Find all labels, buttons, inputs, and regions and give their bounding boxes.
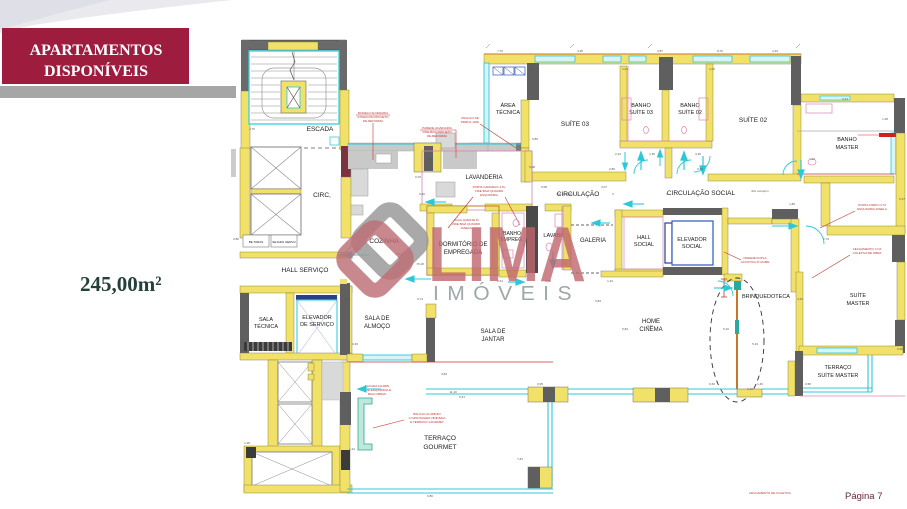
svg-text:GOURMET: GOURMET bbox=[423, 444, 456, 451]
svg-text:11,10: 11,10 bbox=[449, 390, 457, 394]
svg-text:ESQUADRIA JANELA: ESQUADRIA JANELA bbox=[857, 207, 887, 211]
svg-text:0,74: 0,74 bbox=[417, 297, 423, 301]
svg-text:TÉCNICA: TÉCNICA bbox=[496, 109, 520, 116]
svg-text:0,80: 0,80 bbox=[233, 237, 239, 241]
svg-text:TÉCNICA: TÉCNICA bbox=[254, 323, 278, 330]
svg-text:SALA DE: SALA DE bbox=[480, 329, 505, 335]
svg-text:dim comprim: dim comprim bbox=[751, 189, 769, 193]
svg-text:4,35: 4,35 bbox=[577, 49, 583, 53]
svg-text:CIRCULAÇÃO SOCIAL: CIRCULAÇÃO SOCIAL bbox=[667, 188, 736, 197]
svg-text:DE SERVIÇO: DE SERVIÇO bbox=[300, 322, 335, 328]
svg-text:0,80: 0,80 bbox=[609, 167, 615, 171]
svg-text:ELEVADOR: ELEVADOR bbox=[677, 237, 707, 243]
svg-text:0,46: 0,46 bbox=[352, 342, 358, 346]
svg-text:8,70: 8,70 bbox=[717, 49, 723, 53]
svg-text:3,43: 3,43 bbox=[647, 324, 653, 328]
svg-text:SALA DE: SALA DE bbox=[364, 316, 389, 322]
svg-text:FECHAMENTO DE COLETIVA: FECHAMENTO DE COLETIVA bbox=[749, 491, 790, 495]
svg-text:PERFIL 1200: PERFIL 1200 bbox=[461, 120, 479, 124]
svg-text:BANHO: BANHO bbox=[631, 103, 651, 109]
svg-text:ESCADA: ESCADA bbox=[307, 126, 334, 133]
svg-text:0,15: 0,15 bbox=[415, 175, 421, 179]
svg-text:BRINQUEDOTECA: BRINQUEDOTECA bbox=[742, 294, 790, 300]
svg-text:TERRAÇO: TERRAÇO bbox=[424, 435, 456, 442]
svg-text:5,08: 5,08 bbox=[541, 185, 547, 189]
svg-text:2,24: 2,24 bbox=[615, 152, 621, 156]
svg-text:ESQUADRIA: ESQUADRIA bbox=[480, 193, 498, 197]
svg-text:CIRC,: CIRC, bbox=[313, 192, 331, 199]
svg-text:5,10: 5,10 bbox=[723, 327, 729, 331]
svg-text:1,80: 1,80 bbox=[789, 202, 795, 206]
svg-text:ÁREA: ÁREA bbox=[501, 102, 516, 109]
svg-text:1,48: 1,48 bbox=[882, 117, 888, 121]
svg-text:JANTAR: JANTAR bbox=[482, 337, 506, 343]
svg-text:0,87: 0,87 bbox=[657, 49, 663, 53]
svg-text:5,84: 5,84 bbox=[595, 299, 601, 303]
svg-text:BE TARAS: BE TARAS bbox=[249, 240, 264, 244]
svg-text:SUÍTE 02: SUÍTE 02 bbox=[678, 109, 702, 116]
svg-text:SEJADO HERVO: SEJADO HERVO bbox=[272, 240, 296, 244]
svg-text:0,58: 0,58 bbox=[805, 382, 811, 386]
svg-text:LAVANDERIA: LAVANDERIA bbox=[465, 175, 502, 181]
svg-text:1,46: 1,46 bbox=[747, 387, 753, 391]
svg-text:1,46: 1,46 bbox=[757, 382, 763, 386]
svg-text:TERRAÇO: TERRAÇO bbox=[825, 365, 853, 371]
svg-text:7,70: 7,70 bbox=[497, 49, 503, 53]
svg-text:5,10: 5,10 bbox=[752, 342, 758, 346]
svg-text:0,23: 0,23 bbox=[842, 97, 848, 101]
svg-text:1,73: 1,73 bbox=[823, 237, 829, 241]
svg-text:MASTER: MASTER bbox=[847, 301, 870, 307]
svg-text:0,60: 0,60 bbox=[709, 382, 715, 386]
svg-text:1,28: 1,28 bbox=[244, 441, 250, 445]
svg-text:5,61: 5,61 bbox=[459, 395, 465, 399]
svg-text:DE REFORMA: DE REFORMA bbox=[363, 119, 383, 123]
svg-text:HALL: HALL bbox=[637, 235, 651, 241]
svg-text:HALL SERVIÇO: HALL SERVIÇO bbox=[282, 267, 329, 274]
svg-text:MASTER: MASTER bbox=[836, 145, 859, 151]
svg-text:ELEVADOR: ELEVADOR bbox=[302, 315, 332, 321]
svg-text:3,84: 3,84 bbox=[441, 372, 447, 376]
svg-text:70,18: 70,18 bbox=[416, 262, 424, 266]
svg-text:SOCIAL: SOCIAL bbox=[634, 242, 654, 248]
svg-text:0,40: 0,40 bbox=[419, 192, 425, 196]
svg-text:5,27: 5,27 bbox=[899, 197, 905, 201]
svg-text:Página 7: Página 7 bbox=[845, 491, 883, 502]
svg-text:SUÍTE 02: SUÍTE 02 bbox=[739, 115, 768, 124]
svg-text:4,75: 4,75 bbox=[249, 127, 255, 131]
svg-text:BANHO: BANHO bbox=[680, 103, 700, 109]
svg-text:COLETIVA DE OBRA: COLETIVA DE OBRA bbox=[853, 251, 882, 255]
svg-text:SALA: SALA bbox=[259, 317, 273, 323]
svg-text:ACUSTICA P/ HOME: ACUSTICA P/ HOME bbox=[741, 260, 770, 264]
svg-text:0,50: 0,50 bbox=[897, 347, 903, 351]
svg-text:IMÓVEIS: IMÓVEIS bbox=[433, 282, 580, 305]
svg-text:0,80: 0,80 bbox=[697, 167, 703, 171]
svg-text:SUÍTE 03: SUÍTE 03 bbox=[561, 119, 590, 128]
svg-text:6,86: 6,86 bbox=[427, 494, 433, 498]
svg-text:2,06: 2,06 bbox=[344, 297, 350, 301]
svg-text:0,86: 0,86 bbox=[532, 137, 538, 141]
svg-text:ALMOÇO: ALMOÇO bbox=[364, 324, 390, 330]
svg-text:1,24: 1,24 bbox=[349, 447, 355, 451]
svg-text:3,07: 3,07 bbox=[601, 185, 607, 189]
svg-text:SOCIAL: SOCIAL bbox=[682, 244, 702, 250]
svg-text:4,23: 4,23 bbox=[772, 49, 778, 53]
svg-text:5,84: 5,84 bbox=[622, 327, 628, 331]
svg-text:5,08: 5,08 bbox=[529, 165, 535, 169]
svg-text:SUÍTE 03: SUÍTE 03 bbox=[629, 109, 653, 116]
svg-text:0,15: 0,15 bbox=[427, 157, 433, 161]
svg-text:3,35: 3,35 bbox=[695, 152, 701, 156]
svg-text:1,35: 1,35 bbox=[649, 152, 655, 156]
svg-text:DE REFORMA: DE REFORMA bbox=[427, 134, 447, 138]
svg-text:4,33: 4,33 bbox=[797, 297, 803, 301]
svg-text:0,95: 0,95 bbox=[537, 382, 543, 386]
svg-text:E TERRACO GOURMET: E TERRACO GOURMET bbox=[410, 420, 444, 424]
svg-text:BANHO: BANHO bbox=[837, 137, 857, 143]
svg-text:7,81: 7,81 bbox=[517, 457, 523, 461]
svg-text:1,00: 1,00 bbox=[709, 67, 715, 71]
svg-text:dim comprim: dim comprim bbox=[556, 192, 574, 196]
svg-text:SUÍTE: SUÍTE bbox=[850, 292, 867, 299]
svg-text:SUÍTE MASTER: SUÍTE MASTER bbox=[818, 372, 859, 379]
svg-text:APARTAMENTOS: APARTAMENTOS bbox=[30, 42, 163, 59]
svg-text:1,20: 1,20 bbox=[527, 67, 533, 71]
svg-text:1,01: 1,01 bbox=[622, 67, 628, 71]
svg-text:BAIA OBRAS: BAIA OBRAS bbox=[368, 392, 386, 396]
svg-text:245,00m²: 245,00m² bbox=[80, 272, 162, 296]
svg-text:DISPONÍVEIS: DISPONÍVEIS bbox=[44, 61, 148, 80]
svg-text:1,34: 1,34 bbox=[607, 279, 613, 283]
